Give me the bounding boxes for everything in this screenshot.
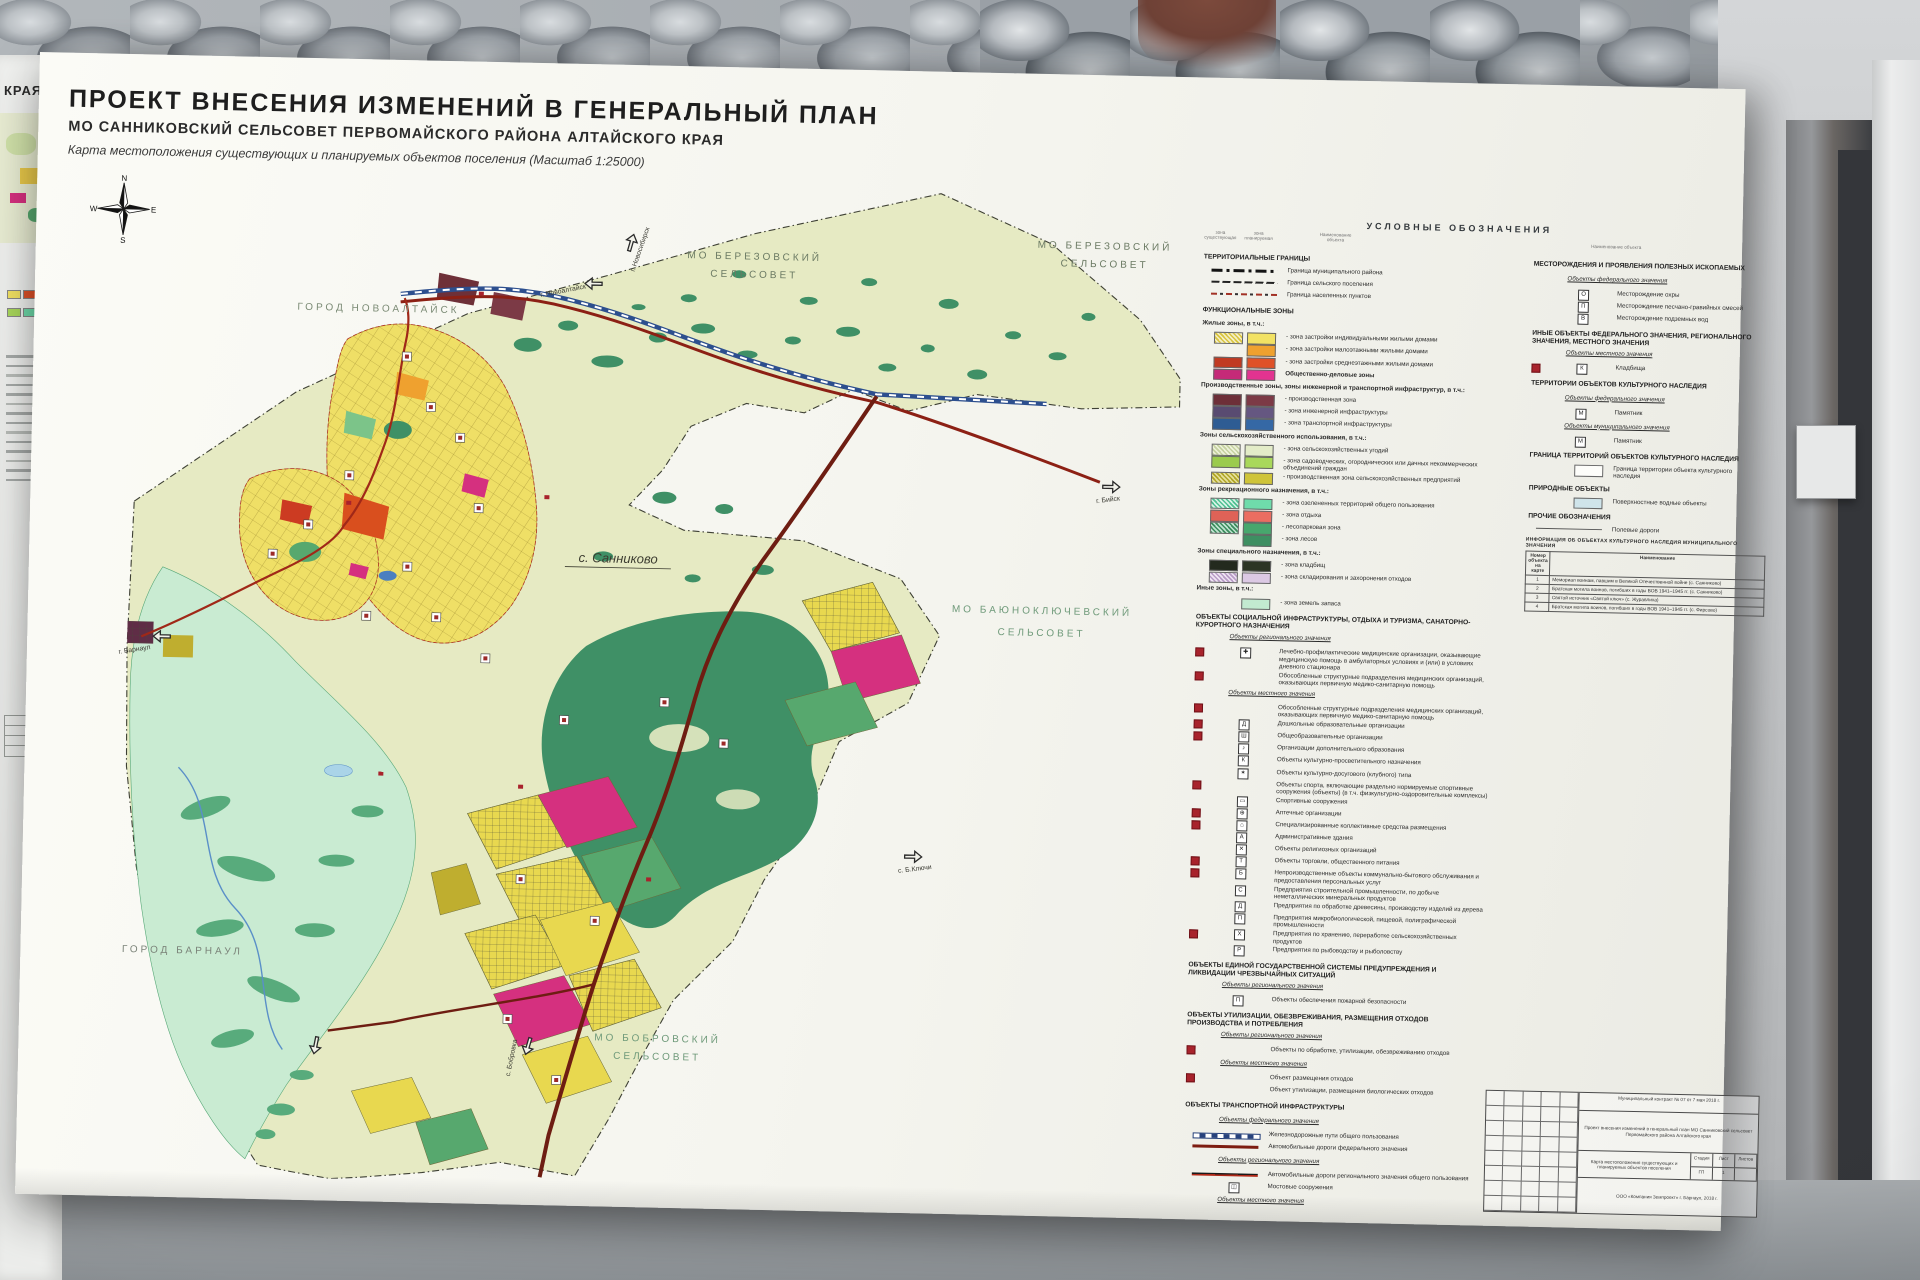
photo-of-poster: КРАЯ ПРОЕКТ ВНЕСЕНИЯ ИЗМЕНЕНИЙ В ГЕНЕРАЛ… [0, 0, 1920, 1280]
legend-label: ОБЪЕКТЫ ЕДИНОЙ ГОСУДАРСТВЕННОЙ СИСТЕМЫ П… [1188, 961, 1436, 979]
planned-object-marker-icon [1190, 869, 1199, 878]
legend-label: Граница сельского поселения [1287, 279, 1373, 288]
legend-label: - зона озелененных территорий общего пол… [1282, 499, 1434, 509]
zone-swatch-existing [1212, 406, 1241, 418]
svg-text:СЕЛЬСОВЕТ: СЕЛЬСОВЕТ [997, 627, 1085, 640]
legend-label: - зона отдыха [1282, 511, 1321, 519]
col-name: Наименование объекта [1317, 232, 1355, 243]
legend-label: Административные здания [1275, 833, 1353, 842]
line-symbol [1536, 528, 1602, 530]
legend-label: Объекты обеспечения пожарной безопасност… [1272, 996, 1407, 1006]
legend-column-2: МЕСТОРОЖДЕНИЯ И ПРОЯВЛЕНИЯ ПОЛЕЗНЫХ ИСКО… [1528, 255, 1762, 542]
object-icon: О [1578, 290, 1589, 301]
legend-label: МЕСТОРОЖДЕНИЯ И ПРОЯВЛЕНИЯ ПОЛЕЗНЫХ ИСКО… [1534, 261, 1745, 273]
object-icon: М [1575, 436, 1586, 447]
general-plan-poster: ПРОЕКТ ВНЕСЕНИЯ ИЗМЕНЕНИЙ В ГЕНЕРАЛЬНЫЙ … [15, 52, 1746, 1231]
legend-column-headers: зона существующая зона планируемая Наиме… [1204, 229, 1354, 242]
line-symbol [1192, 1172, 1258, 1177]
planned-object-marker-icon [1192, 808, 1201, 817]
zone-swatch-existing [1210, 510, 1239, 522]
legend-label: - зона земель запаса [1280, 599, 1341, 607]
object-icon: Т [1235, 857, 1246, 868]
legend-label: Автомобильные дороги регионального значе… [1268, 1171, 1469, 1182]
legend-item: М Памятник [1530, 435, 1758, 450]
legend-label: Поверхностные водные объекты [1612, 498, 1706, 507]
object-icon: В [1228, 1210, 1239, 1214]
arrow-biysk: г. Бийск [1096, 481, 1121, 506]
legend-label: Организации дополнительного образования [1277, 745, 1404, 755]
legend-label: - зона инженерной инфраструктуры [1284, 408, 1387, 417]
planned-object-marker-icon [1186, 1073, 1195, 1082]
planned-object-marker-icon [1195, 671, 1204, 680]
zone-swatch-planned [1242, 572, 1271, 584]
legend-label: Объект размещения отходов [1270, 1074, 1353, 1083]
legend-label: Объекты религиозных организаций [1275, 845, 1377, 854]
object-icon: ✶ [1237, 768, 1248, 779]
legend-item: В Станция обезжелезивания [1183, 1209, 1479, 1214]
legend-item: М Памятник [1530, 407, 1758, 422]
zone-swatch-planned [1244, 473, 1273, 485]
object-icon: В [1577, 314, 1588, 325]
legend-label: Объекты федерального значения [1219, 1116, 1319, 1125]
legend-label: Дошкольные образовательные организации [1278, 720, 1405, 730]
zone-swatch-planned [1243, 535, 1272, 547]
legend-label: - зона застройки среднеэтажными жилыми д… [1285, 358, 1433, 368]
legend-label: Объекты культурно-просветительного назна… [1277, 757, 1421, 767]
legend-label: Обособленные структурные подразделения м… [1278, 672, 1483, 690]
general-plan-map: МО БЕРЕЗОВСКИЙ СЕЛЬСОВЕТ МО БЕРЕЗОВСКИЙ … [30, 164, 1192, 1197]
zone-swatch-planned [1247, 345, 1276, 357]
object-icon: М [1575, 408, 1586, 419]
legend-label: Обособленные структурные подразделения м… [1278, 704, 1483, 722]
map-caption: Карта местоположения существующих и план… [68, 143, 645, 170]
legend-label: Месторождение песчано-гравийных смесей [1617, 303, 1743, 313]
col-planned: зона планируемая [1244, 230, 1273, 241]
legend-label: Предприятия по хранению, переработке сел… [1273, 930, 1457, 945]
legend-label: - лесопарковая зона [1282, 523, 1341, 531]
legend-label: Граница населенных пунктов [1287, 292, 1371, 301]
legend2-column-header: Наименование объекта [1591, 244, 1641, 250]
legend-label: Объект утилизации, размещения биологичес… [1270, 1086, 1434, 1097]
sheets-label: Листов [1735, 1154, 1757, 1167]
legend-label: ИНЫЕ ОБЪЕКТЫ ФЕДЕРАЛЬНОГО ЗНАЧЕНИЯ, РЕГИ… [1532, 329, 1752, 346]
legend-label: Лечебно-профилактические медицинские орг… [1279, 648, 1481, 671]
legend-label: Общественно-деловые зоны [1285, 370, 1374, 379]
zone-swatch-planned [1242, 560, 1271, 572]
stage-label: Стадия [1691, 1153, 1713, 1166]
stamp-map-name: Карта местоположения существующих и план… [1578, 1151, 1692, 1179]
legend-label: Жилые зоны, в т.ч.: [1202, 320, 1264, 328]
door-gap [1838, 150, 1872, 1280]
planned-object-marker-icon [1189, 929, 1198, 938]
zone-swatch-planned [1245, 407, 1274, 419]
legend-item: ОБЪЕКТЫ ЕДИНОЙ ГОСУДАРСТВЕННОЙ СИСТЕМЫ П… [1188, 961, 1484, 983]
adjacent-poster-title-fragment: КРАЯ [4, 83, 42, 98]
zone-swatch-existing [1211, 456, 1240, 468]
zone-swatch-planned [1573, 497, 1602, 509]
object-icon: Д [1235, 901, 1246, 912]
line-symbol [1192, 1144, 1258, 1149]
zone-swatch-planned [1247, 333, 1276, 345]
legend-label: - зона кладбищ [1281, 561, 1325, 569]
planned-object-marker-icon [1193, 732, 1202, 741]
line-symbol [1211, 293, 1277, 296]
zone-swatch-existing [1213, 356, 1242, 368]
planned-object-marker-icon [1186, 1045, 1195, 1054]
legend-label: Объекты местного значения [1217, 1196, 1304, 1205]
legend-item: Объекты местного значения [1532, 349, 1760, 364]
legend-item: ОБЪЕКТЫ УТИЛИЗАЦИИ, ОБЕЗВРЕЖИВАНИЯ, РАЗМ… [1187, 1011, 1483, 1033]
legend-item: ТЕРРИТОРИИ ОБЪЕКТОВ КУЛЬТУРНОГО НАСЛЕДИЯ [1531, 379, 1759, 394]
zone-swatch-existing [1209, 572, 1238, 584]
sheets-value [1735, 1168, 1757, 1181]
legend-label: ОБЪЕКТЫ УТИЛИЗАЦИИ, ОБЕЗВРЕЖИВАНИЯ, РАЗМ… [1187, 1011, 1429, 1028]
legend-label: Мостовые сооружения [1267, 1183, 1332, 1191]
planned-object-marker-icon [1531, 364, 1540, 373]
heritage-number: 4 [1525, 602, 1550, 612]
legend-item: МЕСТОРОЖДЕНИЯ И ПРОЯВЛЕНИЯ ПОЛЕЗНЫХ ИСКО… [1534, 261, 1762, 276]
legend-label: Объекты федерального значения [1565, 394, 1665, 403]
legend-label: ТЕРРИТОРИИ ОБЪЕКТОВ КУЛЬТУРНОГО НАСЛЕДИЯ [1531, 379, 1707, 390]
legend-label: ТЕРРИТОРИАЛЬНЫЕ ГРАНИЦЫ [1204, 253, 1310, 262]
legend-item: ИНЫЕ ОБЪЕКТЫ ФЕДЕРАЛЬНОГО ЗНАЧЕНИЯ, РЕГИ… [1532, 329, 1760, 350]
zone-swatch-existing [1212, 418, 1241, 430]
object-icon: ◫ [1228, 1182, 1239, 1193]
map-area: МО БЕРЕЗОВСКИЙ СЕЛЬСОВЕТ МО БЕРЕЗОВСКИЙ … [30, 164, 1192, 1197]
legend-label: Предприятия по рыбоводству и рыболовству [1273, 947, 1403, 957]
wall-column [1872, 60, 1920, 1280]
legend-label: - зона лесов [1282, 535, 1318, 543]
object-icon: С [1235, 885, 1246, 896]
label-bayunoklyuchevsky: МО БАЮНОКЛЮЧЕВСКИЙ [952, 602, 1133, 619]
zone-swatch-existing [1211, 472, 1240, 484]
object-icon: П [1234, 913, 1245, 924]
legend-label: ПРОЧИЕ ОБОЗНАЧЕНИЯ [1528, 513, 1610, 522]
legend-column-1: ТЕРРИТОРИАЛЬНЫЕ ГРАНИЦЫ Граница муниципа… [1183, 247, 1500, 1213]
svg-text:СЕЛЬСОВЕТ: СЕЛЬСОВЕТ [613, 1051, 701, 1064]
legend-item: Граница территории объекта культурного н… [1529, 464, 1757, 484]
stage-value: ГП [1691, 1167, 1713, 1180]
object-icon: П [1578, 302, 1589, 313]
legend-item: П Объекты обеспечения пожарной безопасно… [1187, 994, 1483, 1011]
zone-swatch-planned [1245, 419, 1274, 431]
object-icon: ♪ [1238, 744, 1249, 755]
heritage-col-number: Номер объекта на карте [1525, 551, 1550, 576]
object-icon: Д [1238, 719, 1249, 730]
legend-label: Объекты регионального значения [1221, 1031, 1322, 1040]
legend-label: Кладбища [1615, 364, 1645, 372]
planned-object-marker-icon [1194, 720, 1203, 729]
planned-object-marker-icon [1191, 820, 1200, 829]
legend-item: Объекты федерального значения [1533, 275, 1761, 290]
legend-label: Объекты федерального значения [1567, 275, 1667, 284]
legend-label: Граница муниципального района [1287, 267, 1382, 276]
legend-label: Станция обезжелезивания [1267, 1211, 1344, 1214]
legend-label: Объекты культурно-досугового (клубного) … [1277, 769, 1412, 779]
zone-swatch-planned [1246, 395, 1275, 407]
legend-label: Спортивные сооружения [1276, 797, 1348, 806]
legend-label: Месторождение охры [1617, 290, 1679, 298]
object-icon: ▭ [1237, 796, 1248, 807]
door-handle [1796, 425, 1856, 499]
zone-swatch-existing [1213, 394, 1242, 406]
arrow-bklyuchi: с. Б.Ключи [898, 851, 933, 876]
legend-label: Объекты муниципального значения [1564, 422, 1670, 431]
object-icon: Р [1234, 946, 1245, 957]
label-bobrovsky: МО БОБРОВСКИЙ [594, 1030, 721, 1046]
legend-label: Зоны специального назначения, в т.ч.: [1197, 547, 1320, 557]
legend-label: ОБЪЕКТЫ ТРАНСПОРТНОЙ ИНФРАСТРУКТУРЫ [1185, 1101, 1344, 1111]
stamp-project-name: Проект внесения изменений в генеральный … [1578, 1111, 1758, 1155]
legend-item: Объекты местного значения [1183, 1195, 1479, 1212]
legend-label: - зона складирования и захоронения отход… [1281, 573, 1412, 583]
line-symbol [1211, 269, 1277, 273]
legend-label: Объекты регионального значения [1229, 633, 1330, 642]
legend-label: Объекты по обработке, утилизации, обезвр… [1270, 1046, 1449, 1057]
legend-label: Специализированные коллективные средства… [1275, 821, 1446, 832]
svg-text:с. Б.Ключи: с. Б.Ключи [898, 864, 933, 875]
legend-label: Иные зоны, в т.ч.: [1197, 585, 1254, 593]
planned-object-marker-icon [1195, 648, 1204, 657]
legend-label: Объекты торговли, общественного питания [1275, 857, 1400, 867]
legend-item: К Кладбища [1531, 363, 1759, 378]
legend-label: Предприятия строительной промышленности,… [1274, 886, 1439, 903]
zone-swatch-existing [1210, 522, 1239, 534]
sheet-label: Лист [1713, 1154, 1735, 1167]
svg-text:г. Бийск: г. Бийск [1096, 494, 1121, 505]
legend-label: - зона садоводческих, огороднических или… [1283, 457, 1477, 473]
heritage-table-block: ИНФОРМАЦИЯ ОБ ОБЪЕКТАХ КУЛЬТУРНОГО НАСЛЕ… [1524, 537, 1766, 617]
legend-label: Зоны рекреационного назначения, в т.ч.: [1199, 485, 1329, 495]
legend-label: Железнодорожные пути общего пользования [1269, 1131, 1399, 1141]
object-icon: ✕ [1236, 845, 1247, 856]
zone-swatch-planned [1574, 465, 1603, 477]
legend-label: Полевые дороги [1612, 527, 1660, 535]
object-icon: П [1232, 995, 1243, 1006]
label-sannikovo: с. Санниково [578, 550, 657, 567]
object-icon: К [1238, 756, 1249, 767]
legend-label: - зона сельскохозяйственных угодий [1284, 445, 1389, 454]
legend-label: Памятник [1614, 409, 1642, 417]
legend-label: Объекты регионального значения [1218, 1156, 1319, 1165]
legend-item: Объекты федерального значения [1531, 393, 1759, 408]
legend-label: Граница территории объекта культурного н… [1613, 466, 1732, 481]
stamp-stage-block: Стадия Лист Листов ГП 1 [1691, 1153, 1758, 1180]
object-icon: ⊕ [1237, 808, 1248, 819]
planned-object-marker-icon [1192, 780, 1201, 789]
label-novoaltaysk: ГОРОД НОВОАЛТАЙСК [297, 300, 459, 317]
planned-object-marker-icon [1194, 703, 1203, 712]
sheet-value: 1 [1713, 1167, 1735, 1180]
svg-text:СЕЛЬСОВЕТ: СЕЛЬСОВЕТ [1060, 258, 1148, 271]
zone-swatch-existing [1210, 498, 1239, 510]
object-icon: ⌂ [1236, 820, 1247, 831]
legend-title: УСЛОВНЫЕ ОБОЗНАЧЕНИЯ [1366, 221, 1646, 237]
legend-label: Общеобразовательные организации [1277, 732, 1382, 741]
heritage-table: Номер объекта на карте Наименование 1 Ме… [1524, 551, 1765, 617]
zone-swatch-existing [1214, 332, 1243, 344]
col-existing: зона существующая [1204, 229, 1236, 240]
legend-label: Автомобильные дороги федерального значен… [1268, 1143, 1407, 1153]
legend-label: ПРИРОДНЫЕ ОБЪЕКТЫ [1529, 484, 1610, 493]
legend-label: Непроизводственные объекты коммунально-б… [1274, 870, 1479, 887]
zone-swatch-existing [1209, 559, 1238, 571]
zone-swatch-planned [1244, 456, 1273, 468]
legend-label: Зоны сельскохозяйственного использования… [1200, 431, 1367, 442]
legend-label: Объекты местного значения [1228, 689, 1315, 698]
stamp-organization: ООО «Компания Земпроект» г. Барнаул, 201… [1577, 1178, 1757, 1217]
svg-text:СЕЛЬСОВЕТ: СЕЛЬСОВЕТ [710, 269, 798, 282]
title-block-stamp: Муниципальный контракт № 07 от 7 мая 201… [1483, 1090, 1760, 1218]
zone-swatch-planned [1243, 510, 1272, 522]
legend-label: - производственная зона [1285, 395, 1357, 404]
object-icon: ✚ [1240, 648, 1251, 659]
zone-swatch-planned [1244, 444, 1273, 456]
label-barnaul: ГОРОД БАРНАУЛ [122, 944, 243, 958]
legend-item: Объекты муниципального значения [1530, 421, 1758, 436]
object-icon: Б [1235, 869, 1246, 880]
legend-label: - зона застройки малоэтажными жилыми дом… [1286, 346, 1428, 356]
zone-swatch-planned [1243, 498, 1272, 510]
object-icon: Х [1234, 929, 1245, 940]
line-symbol [1211, 281, 1277, 284]
legend-item: ОБЪЕКТЫ СОЦИАЛЬНОЙ ИНФРАСТРУКТУРЫ, ОТДЫХ… [1196, 613, 1492, 635]
legend-label: ГРАНИЦА ТЕРРИТОРИЙ ОБЪЕКТОВ КУЛЬТУРНОГО … [1529, 452, 1738, 464]
legend-label: Месторождение подземных вод [1616, 315, 1708, 324]
zone-swatch-planned [1246, 357, 1275, 369]
zone-swatch-existing [1211, 444, 1240, 456]
legend-label: ОБЪЕКТЫ СОЦИАЛЬНОЙ ИНФРАСТРУКТУРЫ, ОТДЫХ… [1196, 613, 1471, 630]
zone-swatch-planned [1246, 369, 1275, 381]
zone-swatch-planned [1241, 598, 1270, 610]
legend-label: - зона транспортной инфраструктуры [1284, 420, 1392, 429]
object-icon: Ш [1238, 732, 1249, 743]
legend-label: - зона застройки индивидуальными жилыми … [1286, 334, 1438, 344]
legend-label: Аптечные организации [1276, 809, 1342, 817]
legend-label: Памятник [1614, 437, 1642, 445]
legend-label: Объекты местного значения [1566, 349, 1653, 358]
stamp-signature-grid [1484, 1091, 1580, 1213]
zone-swatch-planned [1243, 522, 1272, 534]
object-icon: К [1576, 364, 1587, 375]
legend-label: Предприятия микробиологической, пищевой,… [1273, 914, 1456, 929]
legend-label: ФУНКЦИОНАЛЬНЫЕ ЗОНЫ [1203, 306, 1294, 315]
line-symbol [1193, 1132, 1261, 1139]
planned-object-marker-icon [1191, 857, 1200, 866]
legend-label: Объекты регионального значения [1222, 981, 1323, 990]
zone-swatch-existing [1213, 368, 1242, 380]
object-icon: А [1236, 832, 1247, 843]
legend-label: Объекты местного значения [1220, 1059, 1307, 1068]
planned-object-marker-icon [1183, 1210, 1192, 1214]
